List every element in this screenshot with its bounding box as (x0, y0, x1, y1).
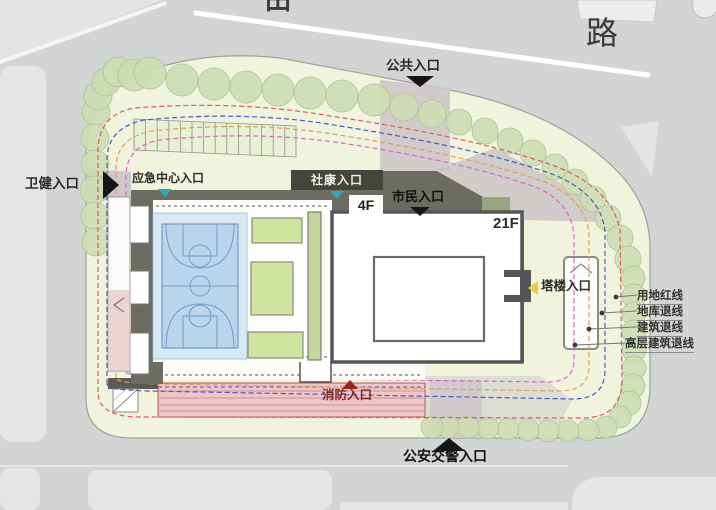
tree-icon (418, 100, 446, 128)
green-strip (308, 212, 321, 360)
legend-item-highrise-setback: 高层建筑退线 (625, 335, 694, 353)
podium-floors-label: 4F (349, 195, 383, 215)
tree-icon (497, 418, 519, 440)
hatched-box (113, 389, 138, 412)
citizen-entrance-label: 市民入口 (392, 190, 444, 204)
tree-icon (477, 417, 499, 439)
tree-icon (421, 416, 443, 438)
fire-entrance-label: 消防入口 (322, 389, 372, 403)
tree-icon (358, 84, 390, 116)
tree-icon (577, 419, 599, 441)
community-entrance-arrow-icon (330, 191, 344, 199)
health-entrance-label: 卫健入口 (25, 177, 79, 192)
tree-icon (326, 80, 358, 112)
fire-entrance-arrow-icon (342, 380, 358, 389)
tree-icon (537, 420, 559, 442)
tree-icon (390, 93, 418, 121)
tree-icon (457, 416, 479, 438)
health-entrance-arrow-icon (103, 171, 119, 199)
tree-icon (81, 202, 109, 230)
sidewalk-block (0, 66, 46, 442)
buildings-layer (108, 171, 531, 384)
sidewalk-block (572, 477, 716, 510)
skylights (130, 206, 149, 374)
police-entrance-label: 公安交警入口 (403, 449, 487, 464)
south-pavilion (300, 361, 331, 382)
tree-icon (472, 118, 498, 144)
basketball-court (153, 213, 247, 359)
police-entrance-arrow-icon (433, 438, 465, 451)
tree-icon (557, 420, 579, 442)
community-entrance-label: 社康入口 (291, 170, 383, 190)
sidewalk-block (340, 502, 568, 510)
tower-core (374, 257, 484, 341)
road-name: 路 (586, 16, 618, 51)
tree-icon (517, 419, 539, 441)
public-entrance-label: 公共入口 (386, 59, 440, 74)
tree-icon (294, 77, 326, 109)
site-plan-canvas (0, 0, 716, 510)
west-ramp (108, 197, 130, 371)
site-plan: 田 路 公共入口 卫健入口 应急中心入口 社康入口 4F 市民入口 21F 塔楼… (0, 0, 716, 510)
tree-icon (230, 71, 262, 103)
road-name-partial: 田 (265, 0, 295, 14)
tree-icon (134, 57, 166, 89)
basement-ramp (564, 257, 598, 349)
tower-entrance-arrow-icon (528, 281, 538, 295)
sidewalk-block (0, 468, 40, 510)
tree-icon (82, 228, 110, 256)
tree-icon (166, 64, 198, 96)
tower-entrance-notch (500, 270, 531, 302)
emergency-entrance-label: 应急中心入口 (132, 172, 204, 185)
tree-icon (198, 68, 230, 100)
emergency-entrance-arrow-icon (158, 189, 172, 197)
tree-icon (262, 74, 294, 106)
tree-icon (497, 128, 523, 154)
tree-icon (446, 109, 472, 135)
tower-entrance-label: 塔楼入口 (541, 280, 591, 294)
tree-icon (81, 124, 109, 152)
sidewalk-block (88, 470, 332, 510)
tower-floors-label: 21F (493, 216, 519, 233)
citizen-entrance-arrow-icon (410, 207, 430, 216)
public-entrance-arrow-icon (406, 76, 434, 87)
podium-south-strip (163, 362, 425, 380)
